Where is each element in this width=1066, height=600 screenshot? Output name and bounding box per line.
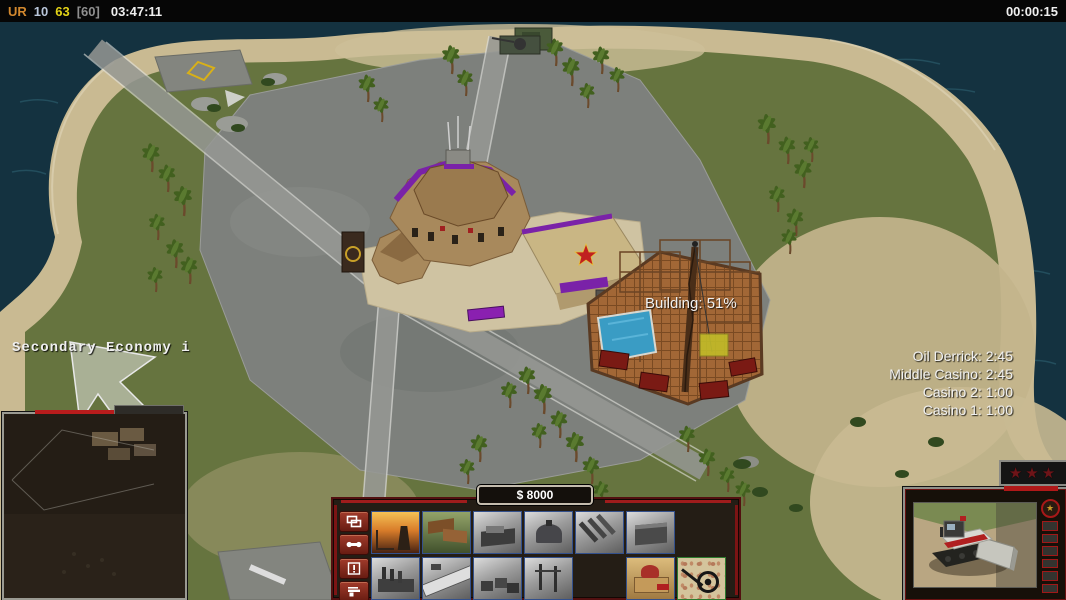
helipad-north <box>155 50 252 92</box>
construction-dozer-icon <box>914 503 1036 587</box>
game-clock: 03:47:11 <box>111 4 162 19</box>
barracks-icon[interactable] <box>422 511 471 554</box>
command-bar-edge <box>334 505 337 595</box>
queue-item: Oil Derrick: 2:45 <box>760 347 1013 365</box>
beacon-gun-icon <box>346 585 362 598</box>
queue-item: Casino 1: 1:00 <box>760 401 1013 419</box>
command-bar-accent <box>341 500 467 503</box>
empty-slot <box>575 557 624 600</box>
alert-button[interactable] <box>339 558 369 579</box>
stacked-windows-icon <box>346 515 362 528</box>
factory-icon[interactable] <box>371 557 420 600</box>
selected-unit-portrait[interactable] <box>913 502 1037 588</box>
red-star-emblem: ★ <box>1041 499 1060 518</box>
command-bar-edge <box>735 505 738 595</box>
queue-item: Middle Casino: 2:45 <box>760 365 1013 383</box>
rank-star-bar[interactable]: ★★★ <box>999 460 1066 486</box>
game-screen: UR 10 63 [60] 03:47:11 00:00:15 <box>0 0 1066 600</box>
rail-cell <box>1042 559 1058 569</box>
stacked-windows-button[interactable] <box>339 511 369 532</box>
match-timer: 00:00:15 <box>1006 4 1066 19</box>
beacon-button[interactable] <box>339 581 369 600</box>
top-status-bar: UR 10 63 [60] 03:47:11 00:00:15 <box>0 0 1066 22</box>
faction-label: UR <box>8 4 27 19</box>
stat-cap: [60] <box>77 4 100 19</box>
empty-slot <box>677 511 726 554</box>
roof-shape <box>443 529 467 544</box>
helipad-south <box>218 542 340 600</box>
cooling-tower-shape <box>395 526 413 550</box>
veterancy-rail: ★ <box>1039 499 1061 593</box>
rail-cell <box>1042 534 1058 544</box>
artillery-site-icon[interactable] <box>575 511 624 554</box>
stat-value-1: 10 <box>34 4 48 19</box>
unit-info-panel: ★ <box>903 487 1066 600</box>
propaganda-dome-icon[interactable] <box>524 511 573 554</box>
mine-detector-icon[interactable] <box>677 557 726 600</box>
rail-cell <box>1042 521 1058 531</box>
alert-icon <box>346 562 362 575</box>
production-queue: Oil Derrick: 2:45 Middle Casino: 2:45 Ca… <box>760 347 1013 419</box>
command-bar-accent <box>605 500 731 503</box>
queue-item: Casino 2: 1:00 <box>760 383 1013 401</box>
power-plant-icon[interactable] <box>371 511 420 554</box>
command-bar <box>331 497 741 600</box>
rail-cell <box>1042 571 1058 581</box>
watchtower-icon[interactable] <box>524 557 573 600</box>
supply-center-icon[interactable] <box>626 511 675 554</box>
rank-star-strip <box>1004 486 1058 491</box>
money-readout: $ 8000 <box>477 485 593 505</box>
rail-cell <box>1042 584 1058 594</box>
minimap-view <box>4 414 185 598</box>
pylon-shape <box>376 530 394 550</box>
stat-value-2: 63 <box>55 4 69 19</box>
console-message: Secondary Economy i <box>12 340 191 356</box>
minimap[interactable] <box>2 412 187 600</box>
casino-icon[interactable] <box>626 557 675 600</box>
rail-cell <box>1042 546 1058 556</box>
war-factory-icon[interactable] <box>473 511 522 554</box>
player-stats: UR 10 63 [60] 03:47:11 <box>0 4 162 19</box>
wrench-icon <box>346 538 362 551</box>
depot-icon[interactable] <box>473 557 522 600</box>
airfield-icon[interactable] <box>422 557 471 600</box>
building-progress-label: Building: 51% <box>645 295 737 312</box>
repair-button[interactable] <box>339 534 369 555</box>
